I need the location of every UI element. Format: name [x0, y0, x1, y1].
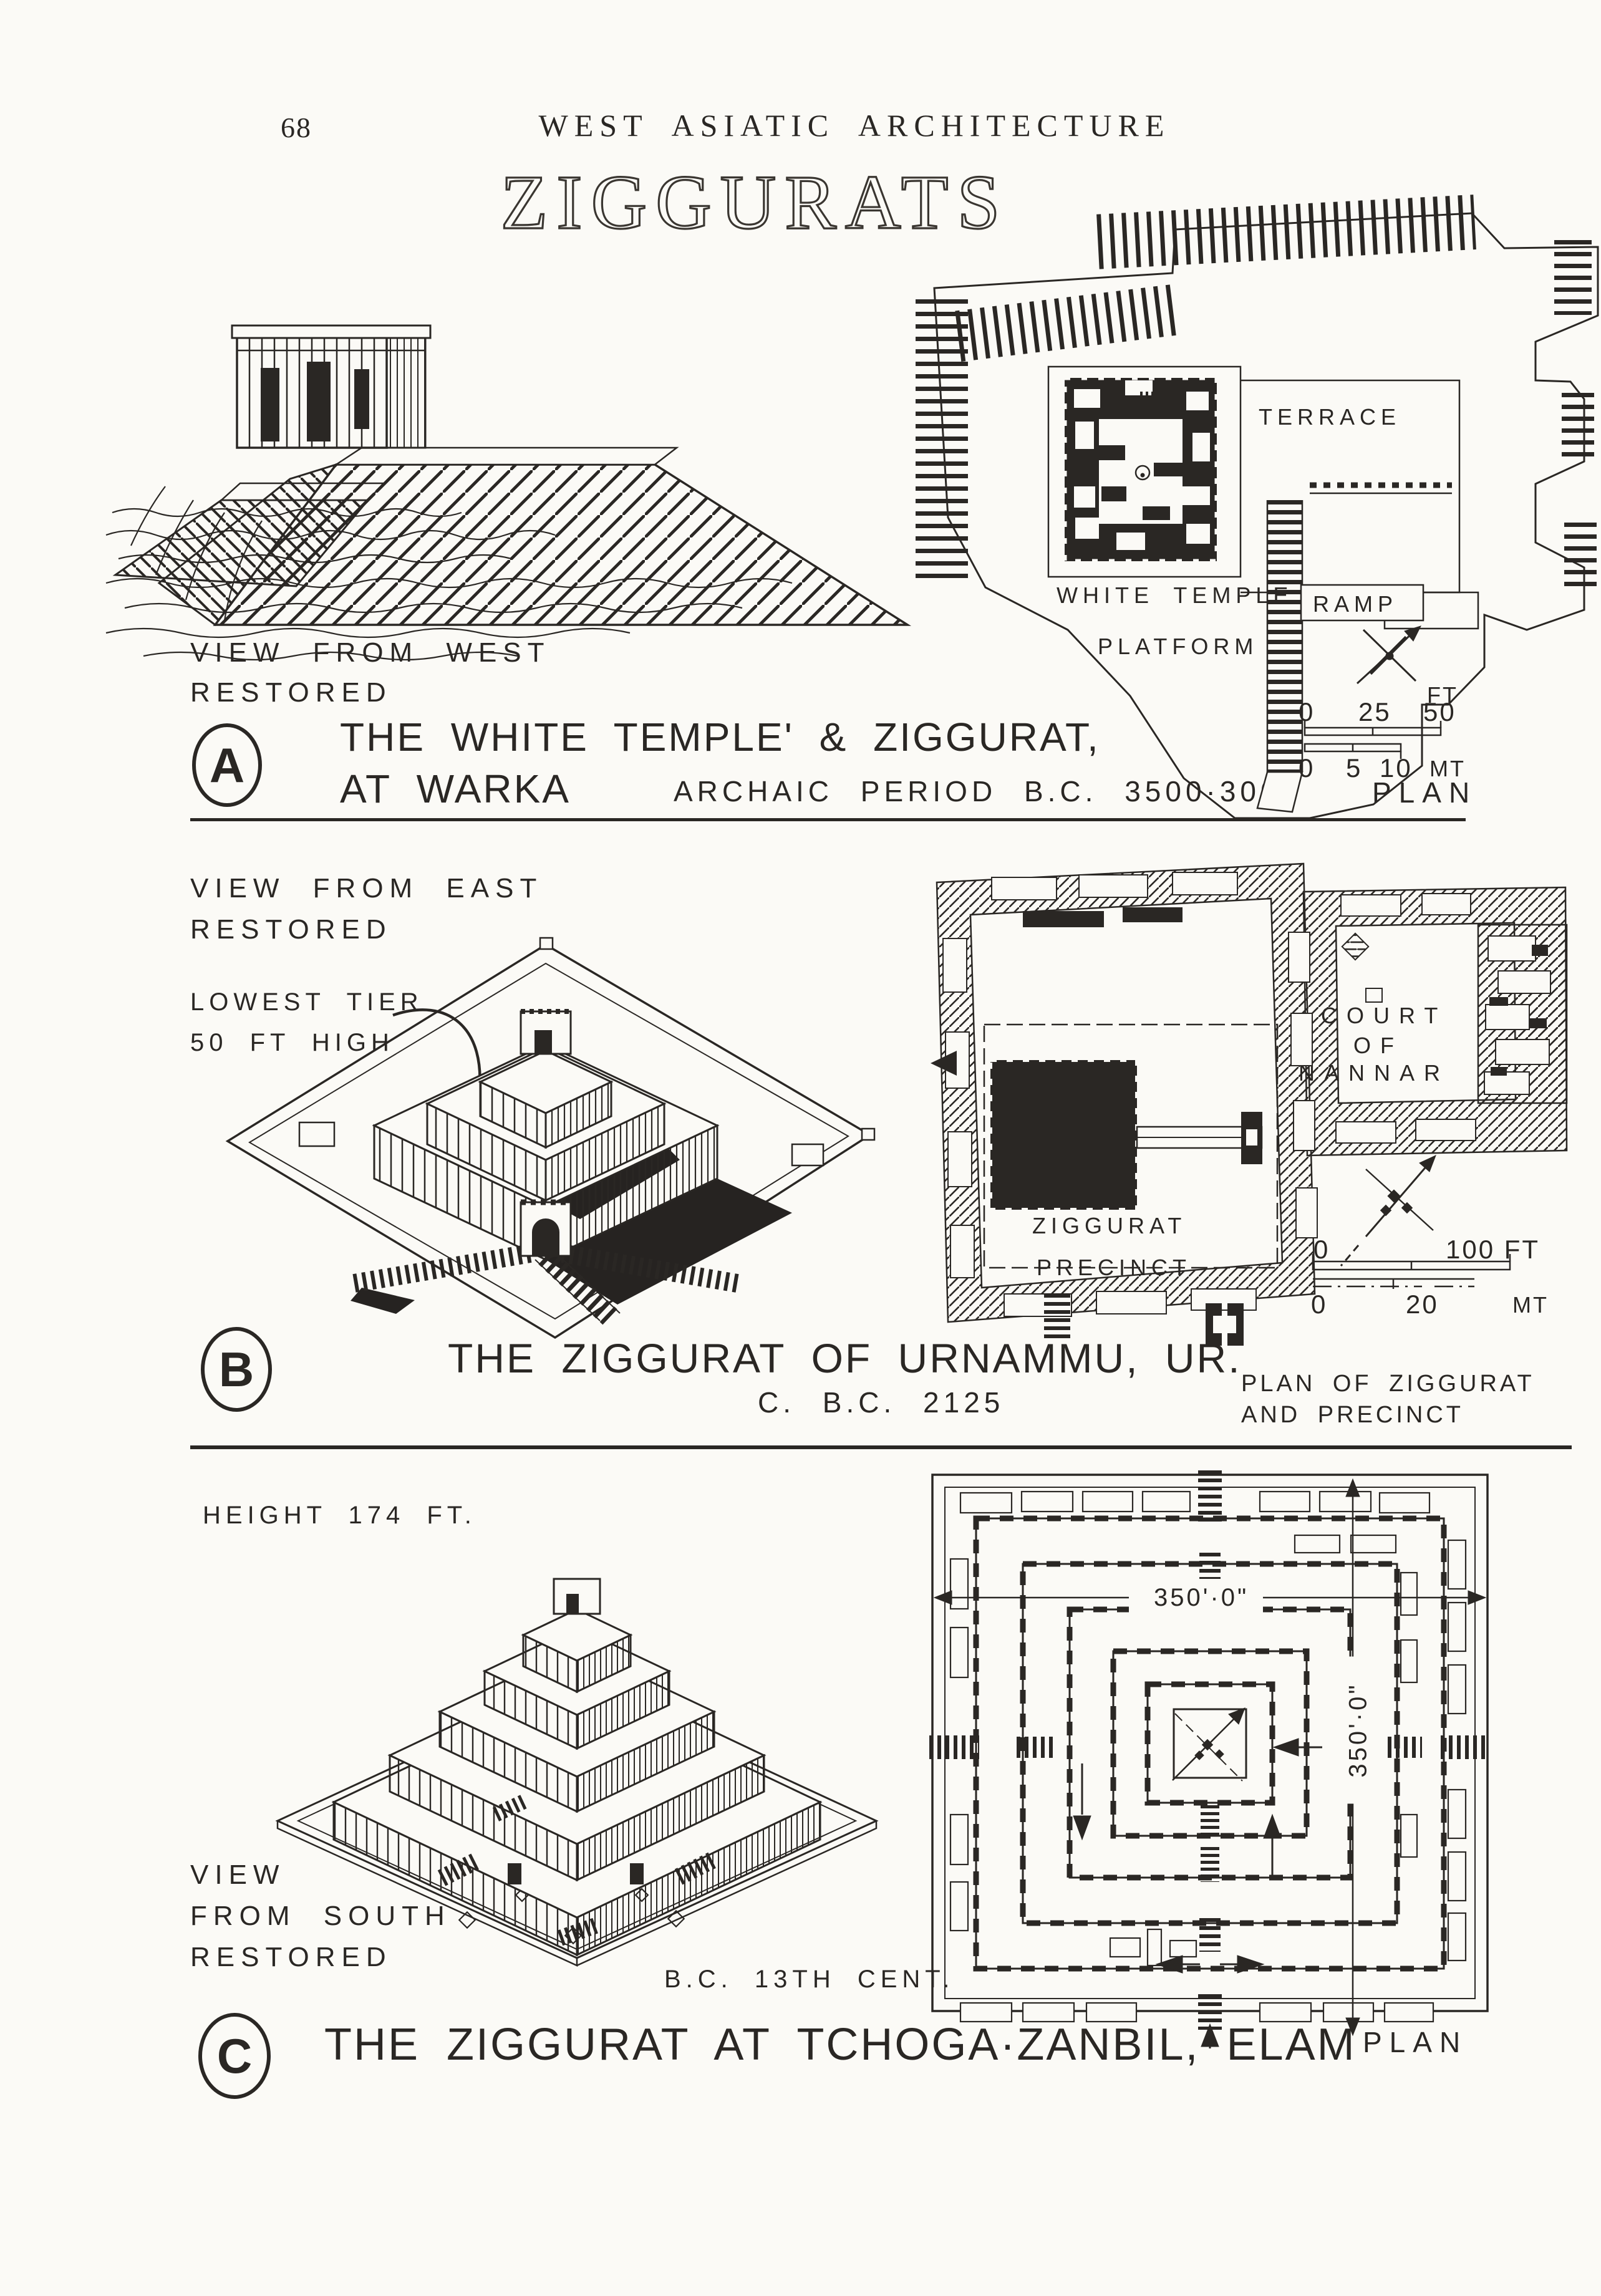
plan-a-platform-label: PLATFORM	[1098, 634, 1258, 660]
plan-a-plan-label: PLAN	[1372, 776, 1477, 809]
summit-shrine-c	[554, 1579, 600, 1614]
plan-a-ramp-label: RAMP	[1313, 591, 1398, 617]
view-label-c-line2: FROM SOUTH	[190, 1901, 451, 1932]
plan-c-dim-height: 350'·0"	[1345, 1657, 1373, 1804]
white-temple-block	[232, 326, 430, 448]
north-compass-c	[1173, 1708, 1245, 1781]
plan-b-note-line2: AND PRECINCT	[1241, 1402, 1464, 1429]
plan-a-white-temple-label: WHITE TEMPLE	[1057, 582, 1293, 609]
view-label-b-line1: VIEW FROM EAST	[190, 873, 543, 904]
plan-a-scale-mt0: 0	[1299, 753, 1315, 783]
white-temple-plan-drawing	[911, 193, 1601, 829]
plan-c-dim-width: 350'·0"	[1149, 1584, 1254, 1612]
plan-b-precinct-line2: PRECINCT	[1037, 1255, 1191, 1281]
plan-b-precinct-line1: ZIGGURAT	[1032, 1213, 1186, 1239]
caption-a-line2: AT WARKA	[340, 766, 571, 812]
view-label-a-line2: RESTORED	[190, 677, 392, 708]
view-label-c-line3: RESTORED	[190, 1942, 392, 1973]
court-annex-rooms	[1478, 925, 1567, 1103]
court-diamond-mark	[1342, 933, 1368, 960]
plan-b-scale-mt-unit: MT	[1512, 1292, 1549, 1318]
ziggurat-footprint	[990, 1060, 1262, 1210]
plan-b-court-line2: OF	[1353, 1033, 1403, 1059]
ramp-stair	[1257, 500, 1302, 812]
plan-a-terrace-label: TERRACE	[1259, 404, 1401, 430]
plan-a-scale-ft25: 25	[1358, 697, 1391, 727]
plan-a-scale-mt5: 5	[1346, 753, 1362, 783]
ziggurat-mound	[159, 448, 907, 625]
plan-b-note-line1: PLAN OF ZIGGURAT	[1241, 1371, 1535, 1397]
plan-a-scale-ft0: 0	[1299, 697, 1315, 727]
plan-b-scale-mt0: 0	[1311, 1290, 1327, 1319]
page-number: 68	[281, 111, 312, 144]
figure-marker-a-letter: A	[210, 737, 244, 794]
gate-stairs-c	[929, 1470, 1487, 2030]
white-temple-footprint	[1065, 378, 1217, 561]
caption-b: THE ZIGGURAT OF URNAMMU, UR.	[448, 1334, 1242, 1382]
white-temple-perspective-drawing	[106, 268, 917, 673]
plan-b-court-line1: COURT	[1321, 1003, 1447, 1029]
plan-a-scale-ft50: 50	[1423, 697, 1456, 727]
figure-marker-c-letter: C	[217, 2028, 252, 2085]
page-header: WEST ASIATIC ARCHITECTURE	[539, 107, 1171, 143]
plan-b-court-line3: NANNAR	[1299, 1060, 1449, 1086]
view-label-a-line1: VIEW FROM WEST	[190, 637, 551, 668]
section-divider-2	[190, 1445, 1572, 1449]
figure-marker-c: C	[198, 2013, 271, 2099]
north-compass-a	[1357, 626, 1421, 683]
view-label-c-line1: VIEW	[190, 1859, 285, 1891]
tchoga-zanbil-plan-drawing	[923, 1465, 1497, 2052]
figure-marker-a: A	[192, 723, 262, 807]
urnammu-ziggurat-axonometric-drawing	[206, 935, 886, 1347]
caption-b-date: C. B.C. 2125	[758, 1386, 1004, 1419]
plan-b-scale-ft100: 100 FT	[1446, 1235, 1540, 1265]
figure-marker-b-letter: B	[219, 1341, 254, 1398]
urnammu-precinct-plan-drawing	[929, 857, 1572, 1375]
plan-b-scale-mt20: 20	[1406, 1290, 1439, 1319]
caption-c-date: B.C. 13TH CENT.	[664, 1966, 954, 1994]
figure-marker-b: B	[201, 1327, 272, 1412]
plan-b-scale-ft0: 0	[1313, 1235, 1330, 1265]
summit-shrine	[521, 1011, 571, 1054]
north-compass-b	[1341, 1155, 1436, 1266]
book-page: 68 WEST ASIATIC ARCHITECTURE ZIGGURATS	[0, 0, 1601, 2296]
gate-tower	[521, 1202, 571, 1256]
section-divider-1	[190, 818, 1466, 821]
court-small-room	[1366, 988, 1382, 1002]
